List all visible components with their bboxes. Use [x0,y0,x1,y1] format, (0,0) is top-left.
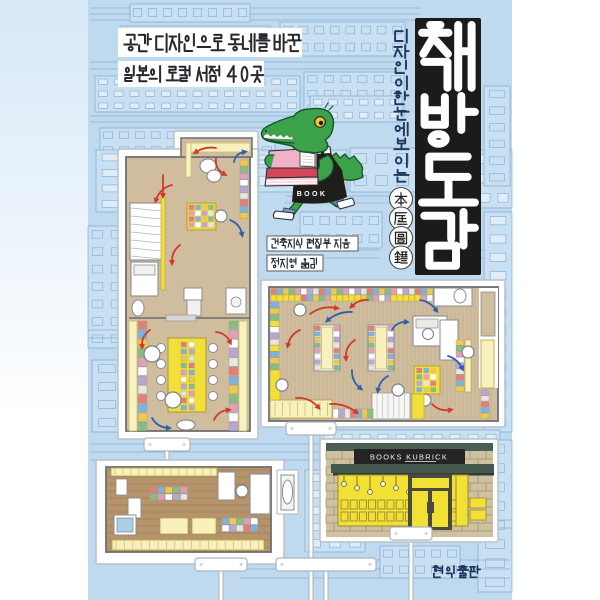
svg-text:BOOKS KUBRICK: BOOKS KUBRICK [370,453,448,462]
svg-text:BOOK: BOOK [297,191,328,198]
